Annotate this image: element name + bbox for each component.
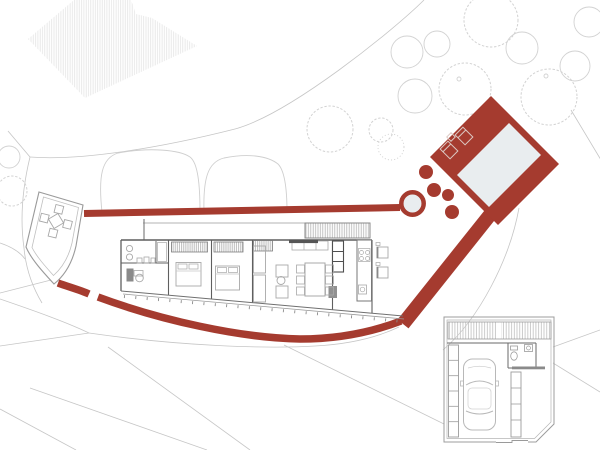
planter-circle — [445, 205, 459, 219]
patio-chair — [63, 220, 73, 230]
wardrobe — [214, 242, 243, 252]
tall-cabinet — [333, 241, 344, 272]
kitchen — [357, 240, 372, 301]
fireplace — [329, 286, 338, 298]
beam — [289, 240, 318, 244]
site-plan-drawing — [0, 0, 600, 450]
patio-chair — [48, 228, 58, 238]
planter-circle — [419, 165, 433, 179]
patio-chair — [40, 213, 50, 223]
planter-circle — [427, 183, 441, 197]
desk — [127, 269, 134, 282]
round-plunge-pool — [401, 192, 423, 214]
entry-deck — [305, 223, 370, 238]
wc-counter — [512, 367, 545, 370]
patio-chair — [54, 205, 64, 215]
kitchen-counter — [357, 240, 372, 301]
site-plan — [0, 0, 600, 450]
pergola-joint — [497, 323, 501, 339]
wardrobe — [172, 242, 208, 252]
planter-circle — [442, 189, 454, 201]
